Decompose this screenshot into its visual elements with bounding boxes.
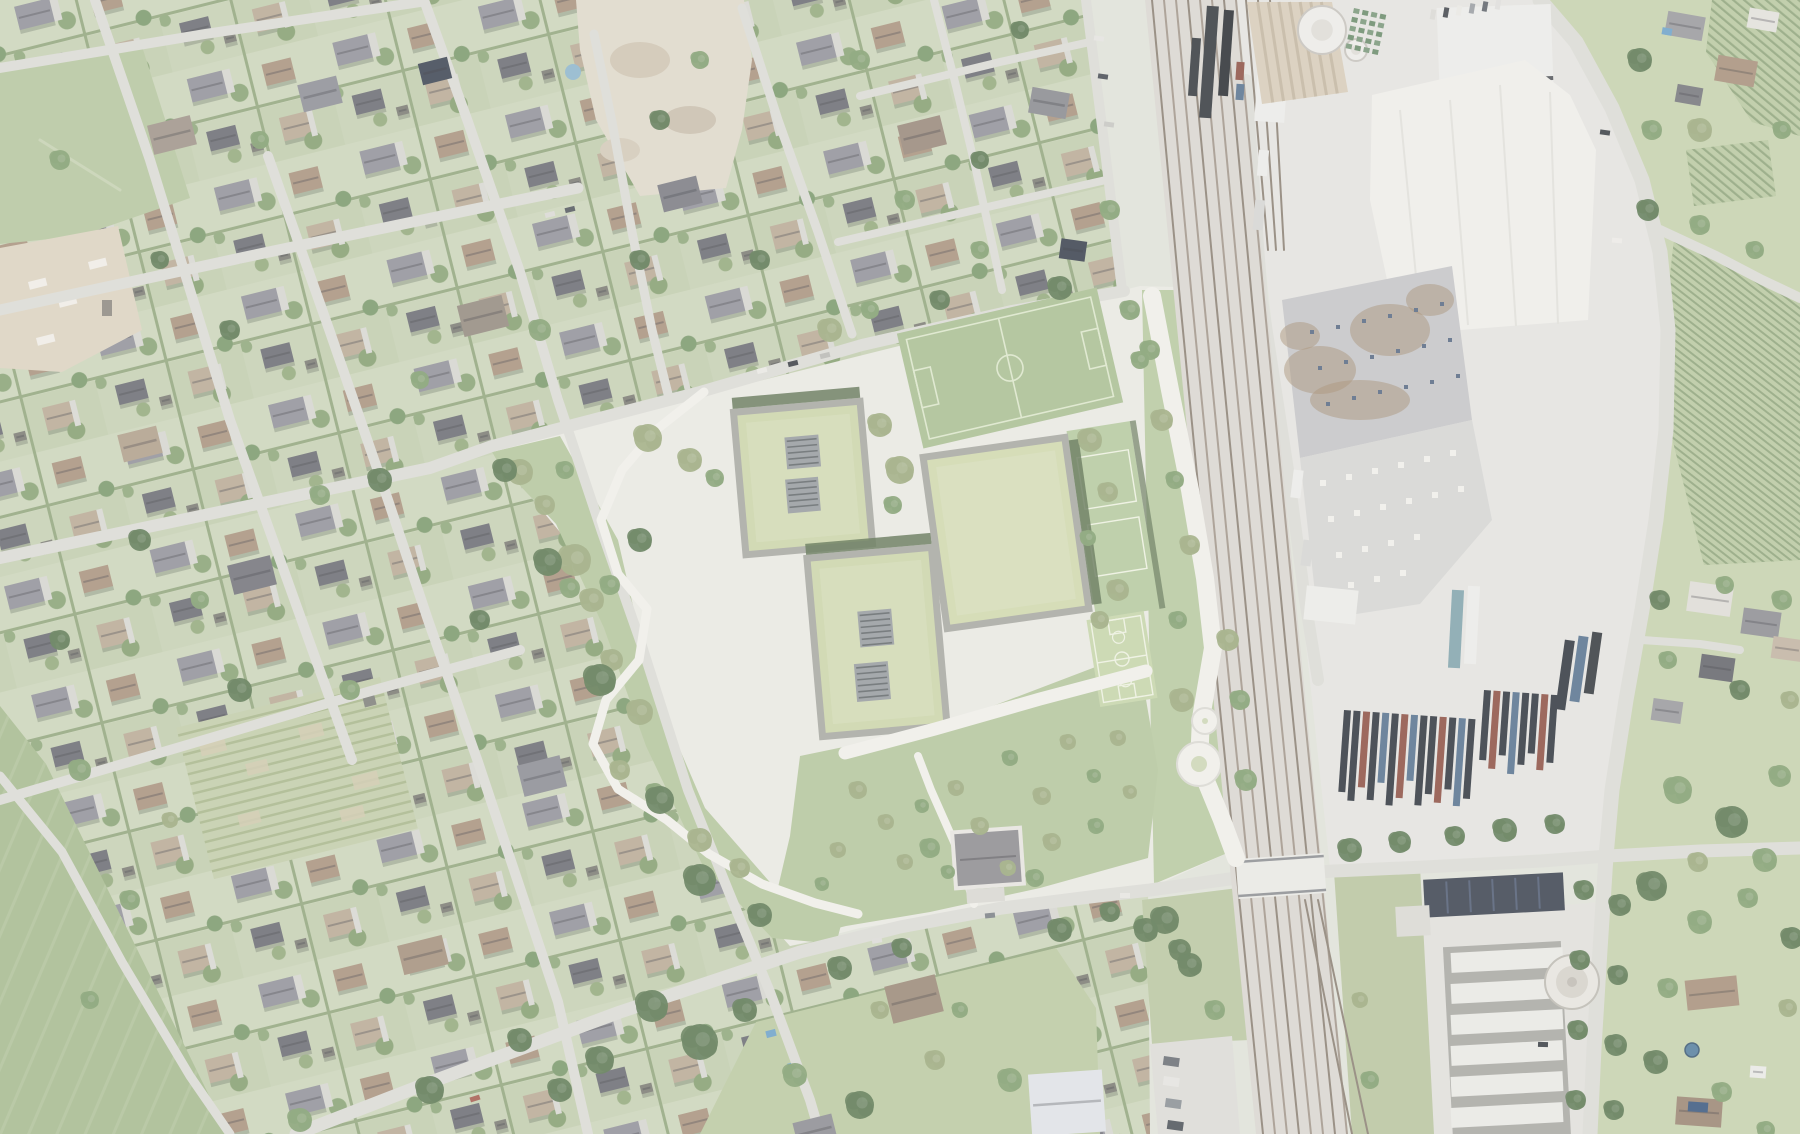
atmosphere-wash (0, 0, 1800, 1134)
layer-atmosphere-wash (0, 0, 1800, 1134)
aerial-map (0, 0, 1800, 1134)
aerial-orthophoto-view (0, 0, 1800, 1134)
